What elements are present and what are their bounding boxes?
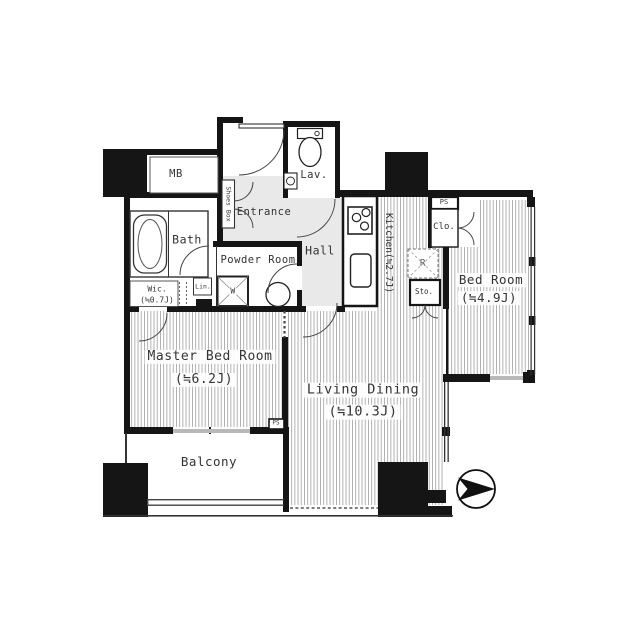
- lavatory-basin-icon: [284, 173, 297, 189]
- meter-box: [150, 157, 218, 193]
- north-arrow-icon: [457, 470, 495, 508]
- bedroom-south-window: [490, 376, 523, 380]
- label-balcony: Balcony: [181, 455, 237, 469]
- label-pipe-space-top: PS: [440, 199, 448, 207]
- label-bath: Bath: [172, 234, 202, 247]
- label-closet: Clo.: [433, 223, 455, 233]
- label-refrigerator: R: [420, 259, 426, 269]
- label-bed-room: Bed Room: [456, 273, 526, 287]
- label-washing-machine: W: [229, 288, 236, 297]
- label-hall: Hall: [305, 245, 335, 258]
- label-bed-room-size: (≒4.9J): [458, 291, 520, 305]
- label-master-bed-room: Master Bed Room: [145, 350, 276, 364]
- label-powder-room: Powder Room: [220, 255, 295, 267]
- kitchen-counter: [343, 196, 377, 306]
- label-kitchen: Kitchen(≒2.7J): [383, 213, 393, 293]
- balcony-railing: [147, 499, 284, 500]
- slab-edge-line: [103, 515, 453, 517]
- label-meter-box: MB: [169, 169, 183, 181]
- label-pipe-space-bottom: PS: [272, 421, 279, 428]
- label-entrance: Entrance: [237, 207, 292, 219]
- entrance-door-arc: [239, 130, 284, 175]
- floor-plan-canvas: MB Shoes Box Entrance Lav. Bath Powder R…: [0, 0, 640, 640]
- floor-plan-drawing: [0, 0, 640, 640]
- label-living-dining-size: (≒10.3J): [325, 405, 400, 420]
- label-walk-in-closet-size: (≒0.7J): [140, 297, 174, 306]
- label-storage: Sto.: [415, 288, 433, 296]
- label-living-dining: Living Dining: [304, 383, 422, 398]
- kitchen-sink-icon: [351, 254, 372, 287]
- bathtub-icon: [134, 215, 167, 273]
- label-shoes-box: Shoes Box: [224, 186, 231, 221]
- toilet-icon: [298, 129, 323, 167]
- master-bedroom-window: [173, 429, 250, 433]
- stove-icon: [348, 207, 372, 234]
- label-walk-in-closet: Wic.: [147, 286, 166, 295]
- label-lavatory: Lav.: [300, 170, 327, 182]
- powder-room-basin-icon: [266, 283, 290, 307]
- label-linen: Lin.: [195, 283, 211, 290]
- front-door-slab: [239, 124, 284, 128]
- label-master-bed-room-size: (≒6.2J): [172, 373, 236, 387]
